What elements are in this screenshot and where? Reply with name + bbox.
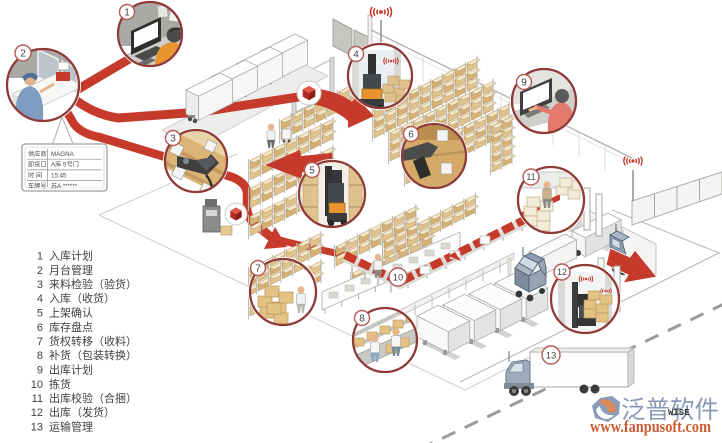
svg-text:8: 8 <box>359 314 365 325</box>
svg-text:www.fanpusoft.com: www.fanpusoft.com <box>590 417 711 436</box>
svg-text:12: 12 <box>31 407 43 419</box>
svg-text:8: 8 <box>37 350 43 362</box>
svg-text:时 间: 时 间 <box>28 171 42 179</box>
svg-text:苏A ******: 苏A ****** <box>51 182 78 190</box>
svg-text:出库（发货）: 出库（发货） <box>49 405 115 419</box>
svg-text:1: 1 <box>37 251 43 263</box>
svg-text:5: 5 <box>309 166 315 177</box>
svg-text:6: 6 <box>408 130 414 141</box>
svg-text:10: 10 <box>393 272 404 283</box>
svg-text:12: 12 <box>557 267 567 277</box>
svg-text:运输管理: 运输管理 <box>49 420 93 434</box>
svg-text:3: 3 <box>170 134 176 145</box>
svg-text:11: 11 <box>32 393 43 405</box>
svg-text:13: 13 <box>31 422 43 434</box>
svg-text:3: 3 <box>37 279 43 291</box>
svg-text:拣货: 拣货 <box>49 377 71 391</box>
svg-text:MAGNA: MAGNA <box>51 151 75 158</box>
svg-text:5: 5 <box>37 308 43 320</box>
svg-text:7: 7 <box>255 264 261 275</box>
svg-text:来料检验（验货）: 来料检验（验货） <box>49 277 137 291</box>
svg-text:补货（包装转换）: 补货（包装转换） <box>49 348 137 362</box>
svg-text:7: 7 <box>37 336 43 348</box>
svg-text:1: 1 <box>124 8 130 19</box>
svg-text:10: 10 <box>31 379 43 391</box>
svg-text:供应商: 供应商 <box>28 150 47 158</box>
svg-text:上架确认: 上架确认 <box>49 307 93 320</box>
svg-text:2: 2 <box>20 49 26 60</box>
svg-text:4: 4 <box>353 50 359 61</box>
svg-text:月台管理: 月台管理 <box>49 263 93 277</box>
svg-text:A库 5号门: A库 5号门 <box>51 161 79 169</box>
svg-text:4: 4 <box>37 293 43 305</box>
svg-text:车牌号: 车牌号 <box>28 182 47 190</box>
svg-text:出库校验（合捆）: 出库校验（合捆） <box>49 391 137 405</box>
svg-text:6: 6 <box>37 322 43 334</box>
svg-text:13: 13 <box>546 350 557 361</box>
svg-text:库存盘点: 库存盘点 <box>49 320 93 334</box>
svg-text:9: 9 <box>37 365 43 377</box>
svg-text:11: 11 <box>526 172 535 182</box>
svg-text:2: 2 <box>37 265 43 277</box>
svg-text:出库计划: 出库计划 <box>49 363 93 377</box>
svg-text:货权转移（收料）: 货权转移（收料） <box>49 334 137 348</box>
svg-text:卸货口: 卸货口 <box>28 161 47 169</box>
svg-text:9: 9 <box>521 78 527 89</box>
svg-text:15:45: 15:45 <box>51 172 67 179</box>
svg-text:入库（收货）: 入库（收货） <box>49 291 115 305</box>
svg-text:入库计划: 入库计划 <box>49 250 93 263</box>
